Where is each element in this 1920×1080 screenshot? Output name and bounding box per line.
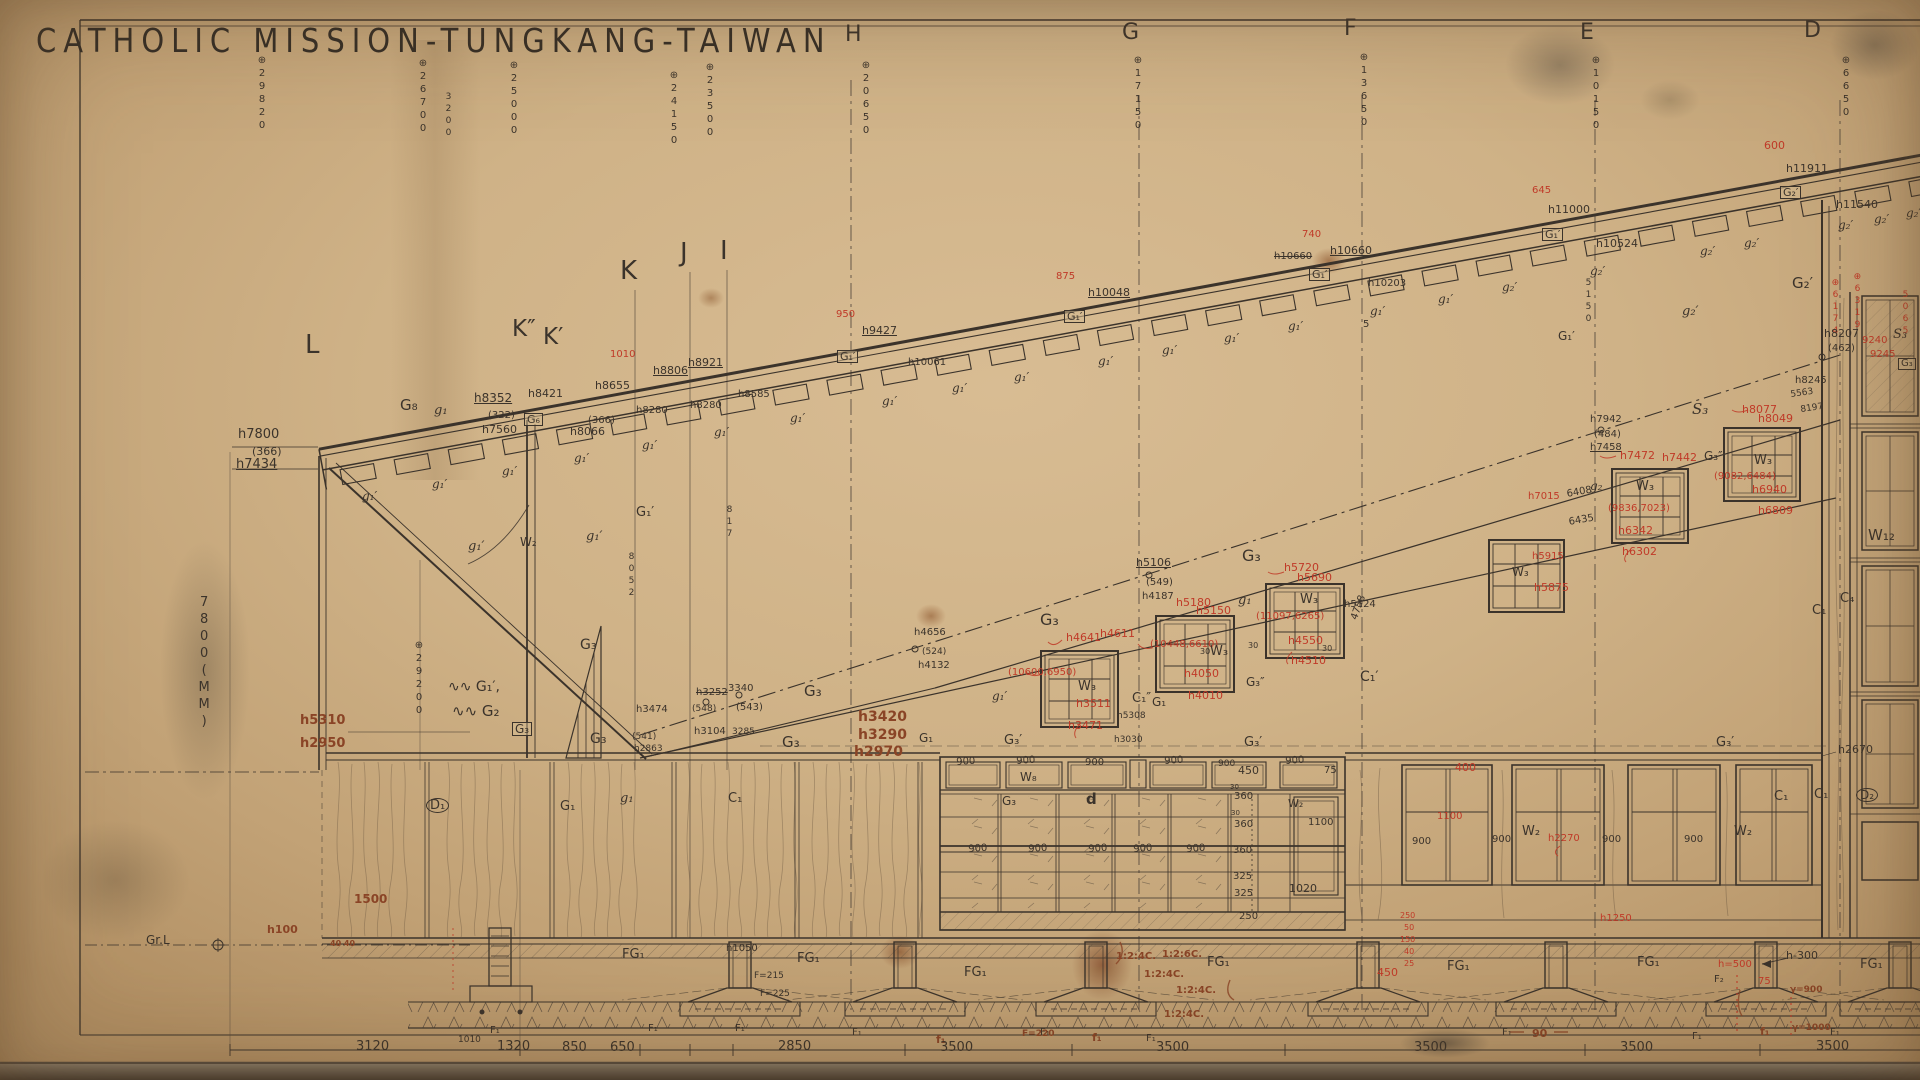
annotation: G₃ (1898, 358, 1916, 370)
annotation: W₃ (1512, 566, 1529, 578)
annotation: W₂ (1734, 825, 1752, 838)
annotation: G₁′ (1064, 310, 1085, 323)
annotation: L (305, 332, 320, 359)
annotation: h4550 (1288, 635, 1323, 646)
annotation: h9427 (862, 325, 897, 336)
annotation: h4641 (1066, 632, 1101, 643)
annotation: D (1804, 20, 1821, 42)
annotation: 1:2:4C. (1144, 970, 1184, 980)
annotation: F₁ (1502, 1028, 1512, 1038)
annotation: C₁′ (1360, 670, 1379, 684)
annotation: h5150 (1196, 605, 1231, 616)
drawing-linework (0, 0, 1920, 1080)
annotation: g₁′ (1224, 332, 1239, 344)
annotation: 900 (968, 844, 988, 855)
annotation: h2950 (300, 737, 345, 750)
annotation: h4187 (1142, 592, 1174, 602)
annotation: ⊕25000 (508, 60, 519, 138)
annotation: h2970 (854, 745, 903, 759)
annotation: G₂′ (1792, 276, 1813, 291)
annotation: (322) (488, 411, 515, 421)
annotation: 250 (1400, 912, 1415, 920)
annotation: F₁ (490, 1026, 500, 1036)
annotation: F=225 (760, 990, 790, 999)
annotation: h11540 (1836, 199, 1878, 210)
annotation: g₂′ (1700, 245, 1715, 257)
annotation: 1010 (458, 1036, 481, 1045)
annotation: 3340 (728, 684, 753, 694)
annotation: 645 (1532, 186, 1551, 196)
annotation: 3200 (443, 92, 452, 140)
annotation: h2270 (1548, 834, 1580, 844)
annotation: 1100 (1437, 812, 1462, 822)
annotation: h8066 (570, 426, 605, 437)
annotation: F₁ (648, 1024, 658, 1034)
annotation: 650 (610, 1041, 635, 1054)
annotation: 360 (1233, 846, 1252, 856)
annotation: G (1122, 22, 1139, 44)
annotation: 900 (1218, 760, 1235, 769)
annotation: ⊕17150 (1132, 55, 1143, 133)
annotation: g₁′ (1438, 293, 1453, 305)
annotation: G₃′ (1004, 734, 1022, 747)
annotation: h4050 (1184, 668, 1219, 679)
annotation: h7458 (1590, 443, 1622, 453)
annotation: F₂ (1714, 975, 1724, 985)
annotation: C₁″ (1132, 692, 1151, 705)
annotation: h7800 (238, 428, 279, 441)
annotation: G₃ (782, 735, 800, 750)
annotation: G₁′ (636, 506, 654, 519)
annotation: C₁ (728, 792, 742, 805)
annotation: (9836,7023) (1608, 504, 1670, 514)
annotation: 5 (1363, 320, 1369, 330)
annotation: ∿∿ G₂ (452, 704, 500, 719)
annotation: G₁ (919, 732, 933, 744)
annotation: 8052 (626, 552, 635, 600)
annotation: 75 (1758, 977, 1771, 987)
annotation: 2850 (778, 1040, 811, 1053)
annotation: h8585 (738, 390, 770, 400)
annotation: γ=1000 (1792, 1024, 1831, 1033)
annotation: G₈ (400, 398, 418, 413)
annotation: 360 (1234, 792, 1253, 802)
annotation: 1320 (497, 1040, 530, 1053)
annotation: FG₁ (797, 952, 820, 965)
annotation: γ=900 (1790, 986, 1822, 995)
annotation: 900 (1285, 756, 1305, 767)
annotation: Gr.L (146, 934, 170, 946)
annotation: 90 (1532, 1028, 1547, 1039)
annotation: G₃ (1040, 612, 1059, 628)
annotation: 9240 (1862, 336, 1887, 346)
annotation: F=220 (1022, 1030, 1054, 1039)
annotation: (484) (1594, 430, 1621, 440)
annotation: g₁ (620, 792, 634, 805)
annotation: (543) (736, 703, 763, 713)
annotation: C₁ (1774, 790, 1788, 803)
annotation: G₁′ (837, 350, 858, 363)
annotation: 1020 (1289, 883, 1317, 894)
annotation: h4611 (1100, 628, 1135, 639)
annotation: K (620, 258, 637, 285)
annotation: h7434 (236, 458, 277, 471)
annotation: 740 (1302, 230, 1321, 240)
annotation: h5310 (300, 714, 345, 727)
annotation: h5308 (1117, 712, 1146, 721)
annotation: 25 (1404, 960, 1414, 968)
annotation: 1:2:4C. (1116, 952, 1156, 962)
annotation: G₃′ (1716, 736, 1734, 749)
annotation: 9245 (1870, 350, 1895, 360)
annotation: h100 (267, 924, 298, 935)
annotation: (548) (692, 705, 716, 714)
annotation: 3500 (1620, 1041, 1653, 1054)
annotation: h5875 (1534, 582, 1569, 593)
annotation: h1050 (726, 944, 758, 954)
annotation: h3030 (1114, 736, 1143, 745)
annotation: 1:2:4C. (1176, 986, 1216, 996)
drawing-title: CATHOLIC MISSION-TUNGKANG-TAIWAN (36, 22, 832, 60)
annotation: (366) (252, 446, 282, 457)
annotation: h8280 (636, 406, 668, 416)
annotation: C₁ (1812, 604, 1826, 617)
annotation: h=500 (1718, 960, 1752, 970)
annotation: 900 (956, 757, 976, 768)
annotation: h8655 (595, 380, 630, 391)
annotation: 900 (1016, 756, 1036, 767)
annotation: h10061 (908, 358, 946, 368)
annotation: h4132 (918, 661, 950, 671)
annotation: h10660 (1274, 252, 1312, 262)
annotation: 75 (1324, 766, 1337, 776)
annotation: 3285 (732, 728, 755, 737)
annotation: h4510 (1291, 655, 1326, 666)
annotation: 5150 (1583, 278, 1592, 326)
annotation: 600 (1764, 140, 1785, 151)
annotation: g₂′ (1744, 237, 1759, 249)
annotation: g₁′ (432, 478, 447, 490)
annotation: g₁′ (1370, 305, 1385, 317)
annotation: ⊕26700 (417, 58, 428, 136)
annotation: 7800(MM) (197, 595, 211, 731)
annotation: W₁₂ (1868, 528, 1895, 543)
annotation: G₃ (804, 684, 822, 699)
annotation: g₁′ (468, 540, 485, 553)
annotation: h8245 (1795, 376, 1827, 386)
annotation: h7015 (1528, 492, 1560, 502)
annotation: g₁′ (362, 490, 377, 502)
annotation: F (1344, 18, 1357, 40)
annotation: 40 (1404, 948, 1414, 956)
annotation: 3500 (1414, 1041, 1447, 1054)
annotation: 817 (724, 505, 733, 541)
annotation: S₃ (1893, 328, 1907, 341)
annotation: ⊕13650 (1358, 52, 1369, 130)
annotation: f₁ (1092, 1032, 1102, 1043)
annotation: 900 (1088, 844, 1108, 855)
annotation: 30 (1322, 645, 1332, 653)
annotation: g₁′ (1162, 344, 1177, 356)
annotation: g₂′ (1874, 213, 1889, 225)
annotation: h3511 (1076, 698, 1111, 709)
annotation: g₁′ (790, 412, 805, 424)
annotation: ⊕6650 (1840, 55, 1851, 120)
annotation: 150 (1400, 936, 1415, 944)
annotation: 325 (1234, 889, 1253, 899)
annotation: W₃ (1078, 680, 1096, 693)
annotation: 250 (1239, 912, 1258, 922)
annotation: (10600,6950) (1008, 668, 1076, 678)
annotation: ⊕24150 (668, 70, 679, 148)
annotation: g₂′ (1502, 281, 1517, 293)
annotation: h10524 (1596, 238, 1638, 249)
annotation: G₁ (1152, 696, 1166, 708)
annotation: d (1086, 792, 1097, 807)
annotation: C₁ (1814, 788, 1828, 801)
annotation: (524) (922, 648, 946, 657)
annotation: (11097,6265) (1256, 612, 1324, 622)
annotation: g₁′ (952, 382, 967, 394)
annotation: g₁′ (586, 530, 603, 543)
annotation: f₁ (1760, 1026, 1770, 1037)
annotation: h8806 (653, 365, 688, 376)
annotation: h5690 (1297, 572, 1332, 583)
annotation: h4010 (1188, 690, 1223, 701)
annotation: g₂′ (1906, 207, 1920, 219)
annotation: h3104 (694, 727, 726, 737)
annotation: W₃ (1636, 480, 1654, 493)
annotation: G₁′ (1558, 330, 1575, 342)
annotation: g₁′ (1098, 355, 1113, 367)
annotation: g₁′ (502, 465, 517, 477)
annotation: F₁ (852, 1028, 862, 1038)
annotation: 325 (1233, 872, 1252, 882)
annotation: 900 (1164, 756, 1184, 767)
annotation: 30 (1200, 648, 1210, 656)
annotation: h3290 (858, 728, 907, 742)
annotation: h7442 (1662, 452, 1697, 463)
annotation: 1500 (354, 893, 387, 905)
annotation: J (680, 240, 688, 267)
annotation: h-300 (1786, 950, 1818, 961)
annotation: h6302 (1622, 546, 1657, 557)
annotation: h6342 (1618, 525, 1653, 536)
annotation: h4656 (914, 628, 946, 638)
scan-edge (0, 1064, 1920, 1080)
annotation: h11000 (1548, 204, 1590, 215)
annotation: 1010 (610, 350, 635, 360)
annotation: W₂ (1522, 825, 1540, 838)
annotation: g₂′ (1590, 265, 1605, 277)
annotation: FG₁ (1207, 956, 1230, 969)
annotation: h8921 (688, 357, 723, 368)
annotation: F₁ (735, 1024, 745, 1034)
annotation: 40 40 (330, 940, 355, 948)
annotation: g₁′ (1014, 371, 1029, 383)
annotation: h5106 (1136, 557, 1171, 568)
annotation: W₃ (1754, 454, 1772, 467)
annotation: g₁′ (1288, 320, 1303, 332)
annotation: G₃ (1002, 795, 1016, 807)
annotation: W₃ (1210, 645, 1228, 658)
annotation: h8352 (474, 392, 512, 404)
annotation: G₃ (512, 722, 532, 736)
annotation: ⊕23500 (704, 62, 715, 140)
annotation: (462) (1828, 344, 1855, 354)
annotation: G₁′ (1309, 268, 1330, 281)
annotation: S₃ (1692, 402, 1708, 417)
annotation: C₄ (1840, 592, 1854, 605)
annotation: W₂ (1288, 798, 1303, 809)
annotation: W₃ (1300, 593, 1318, 606)
annotation: 900 (1602, 835, 1621, 845)
annotation: ⊕10150 (1590, 55, 1601, 133)
annotation: 3120 (356, 1040, 389, 1053)
annotation: (9082,6484) (1714, 472, 1776, 482)
annotation: 360 (1234, 820, 1253, 830)
annotation: h3471 (1068, 720, 1103, 731)
annotation: G₃″ (1246, 676, 1265, 688)
annotation: G₃ (580, 638, 596, 652)
annotation: h5915 (1532, 552, 1564, 562)
annotation: E (1580, 22, 1594, 44)
annotation: 900 (1492, 835, 1511, 845)
annotation: (541) (632, 733, 656, 742)
annotation: h10048 (1088, 287, 1130, 298)
annotation: 850 (562, 1041, 587, 1054)
annotation: ⊕6319 (1852, 272, 1861, 332)
annotation: 450 (1377, 967, 1398, 978)
blueprint-scan: CATHOLIC MISSION-TUNGKANG-TAIWAN LK″K′KJ… (0, 0, 1920, 1080)
annotation: h6809 (1758, 505, 1793, 516)
annotation: h2670 (1838, 744, 1873, 755)
annotation: 900 (1186, 844, 1206, 855)
annotation: g₁′ (992, 690, 1007, 702)
annotation: F₁ (1692, 1032, 1702, 1042)
annotation: G₃′ (1244, 736, 1262, 749)
annotation: 1100 (1308, 818, 1333, 828)
annotation: G₆ (524, 413, 543, 426)
annotation: h2863 (634, 745, 663, 754)
annotation: 950 (836, 310, 855, 320)
annotation: ⊕29820 (256, 55, 267, 133)
annotation: FG₁ (1637, 956, 1660, 969)
annotation: h7942 (1590, 415, 1622, 425)
annotation: 900 (1085, 758, 1104, 768)
annotation: FG₁ (1860, 958, 1883, 971)
annotation: g₂′ (1838, 219, 1853, 231)
annotation: g₁′ (642, 439, 657, 451)
annotation: F=215 (754, 972, 784, 981)
annotation: FG₁ (1447, 960, 1470, 973)
annotation: G₁ (560, 800, 575, 813)
annotation: 3500 (940, 1041, 973, 1054)
annotation: 1:2:6C. (1162, 950, 1202, 960)
annotation: g₁′ (882, 395, 897, 407)
annotation: 875 (1056, 272, 1075, 282)
annotation: G₃ (1242, 548, 1261, 564)
annotation: FG₁ (622, 948, 645, 961)
annotation: g₁′ (574, 452, 589, 464)
annotation: 3500 (1816, 1040, 1849, 1053)
annotation: h10203 (1368, 279, 1406, 289)
annotation: g₁ (1238, 594, 1252, 607)
annotation: h8049 (1758, 413, 1793, 424)
annotation: 900 (1684, 835, 1703, 845)
annotation: 900 (1133, 844, 1153, 855)
annotation: (549) (1146, 578, 1173, 588)
annotation: 1:2:4C. (1164, 1010, 1204, 1020)
annotation: h6940 (1752, 484, 1787, 495)
annotation: K″ (512, 318, 536, 341)
annotation: 30 (1230, 784, 1239, 791)
annotation: G₃ (590, 732, 606, 746)
annotation: F₁ (1830, 1028, 1840, 1038)
annotation: H (845, 24, 862, 46)
annotation: h7560 (482, 424, 517, 435)
annotation: h8421 (528, 388, 563, 399)
annotation: W₈ (1020, 771, 1037, 783)
annotation: h7472 (1620, 450, 1655, 461)
annotation: 450 (1238, 765, 1259, 776)
annotation: g₁′ (714, 426, 729, 438)
annotation: G₃″ (1704, 450, 1723, 462)
annotation: F₁ (1146, 1034, 1156, 1044)
annotation: g₁ (434, 404, 448, 417)
annotation: h1250 (1600, 914, 1632, 924)
annotation: h10660 (1330, 245, 1372, 256)
annotation: 400 (1455, 762, 1476, 773)
annotation: h3474 (636, 705, 668, 715)
annotation: h11911 (1786, 163, 1828, 174)
annotation: K′ (543, 326, 563, 349)
annotation: h3252 (696, 688, 728, 698)
annotation: 30 (1248, 642, 1258, 650)
annotation: 900 (1028, 844, 1048, 855)
annotation: W₂ (520, 536, 537, 548)
annotation: I (720, 238, 728, 265)
annotation: ⊕20650 (860, 60, 871, 138)
annotation: g₂′ (1682, 305, 1699, 318)
annotation: 30 (1231, 810, 1240, 817)
annotation: h8207 (1824, 328, 1859, 339)
annotation: 50 (1404, 924, 1414, 932)
annotation: FG₁ (964, 966, 987, 979)
annotation: G₂′ (1780, 186, 1801, 199)
annotation: ⊕29200 (413, 640, 424, 718)
annotation: 900 (1412, 837, 1431, 847)
annotation: h3420 (858, 710, 907, 724)
annotation: G₁′ (1542, 228, 1563, 241)
annotation: h8280 (690, 401, 722, 411)
annotation: 3500 (1156, 1041, 1189, 1054)
annotation: ∿∿ G₁′, (448, 680, 500, 694)
